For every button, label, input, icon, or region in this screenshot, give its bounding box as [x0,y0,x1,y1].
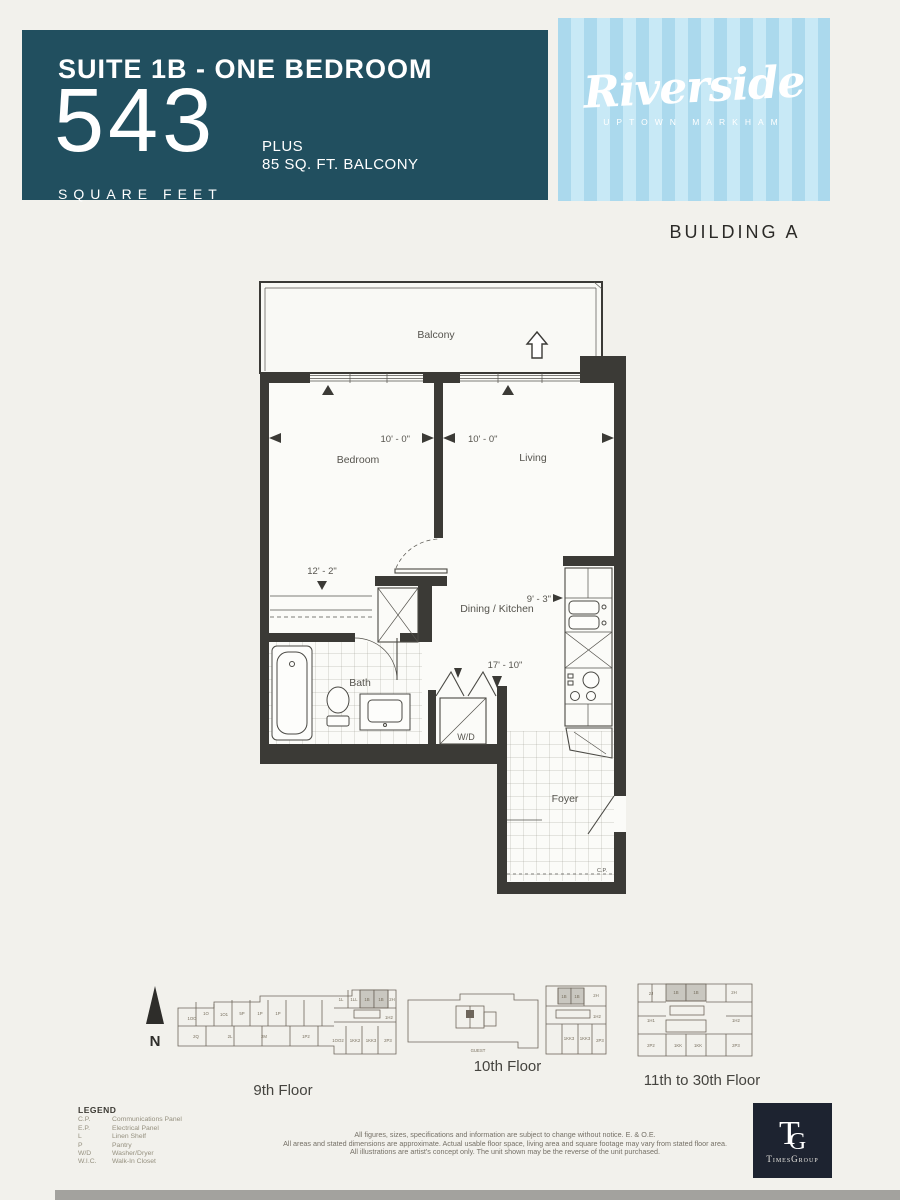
building-label: BUILDING A [610,222,860,243]
keyplan-9th-floor: 1OO 1O 1O1 5P 1P 1P 1L 1LL 1B 1B 2H 2Q 2… [168,978,398,1070]
unit-label: 1H2 [593,1014,601,1019]
balcony-label: Balcony [417,329,455,341]
keyplan-11-30-floor: 2J 1B 1B 2H 1H1 1H2 2P2 1KK 1KK 2P3 [622,972,772,1070]
legend-row: E.P. Electrical Panel [78,1125,182,1133]
brand-panel: Riverside UPTOWN MARKHAM [558,18,830,201]
north-label: N [150,1033,161,1050]
communications-panel-label: C.P. [597,868,607,874]
legend-desc: Walk-In Closet [112,1158,156,1166]
timesgroup-logo: TG TimesGroup [753,1103,832,1178]
tg-monogram-icon: TG [779,1117,806,1151]
unit-label: 2J [649,991,654,996]
brand-logo-script: Riverside [557,55,831,120]
unit-label: 1O1 [220,1012,229,1017]
unit-label: 1O [203,1011,209,1016]
legend-row: C.P. Communications Panel [78,1116,182,1124]
unit-label: 1OO [187,1016,197,1021]
living-width-dim: 10' - 0" [468,434,497,445]
timesgroup-name: TimesGroup [766,1154,818,1164]
unit-label: 1OO2 [332,1038,344,1043]
foyer [507,731,614,881]
kitchen-width-dim: 9' - 3" [527,594,551,605]
unit-label: 2P2 [647,1043,655,1048]
legend-row: P Pantry [78,1142,182,1150]
bathroom [269,638,422,744]
unit-label: 2H [593,993,599,998]
balcony-area-note: 85 SQ. FT. BALCONY [262,156,419,173]
bathtub [272,646,312,740]
unit-label: 1B [574,994,579,999]
legend: LEGEND C.P. Communications Panel E.P. El… [78,1106,182,1167]
legend-desc: Pantry [112,1142,132,1150]
balcony-floor [260,282,602,373]
unit-label: 1KK3 [564,1036,575,1041]
unit-label: 2H [731,990,737,995]
north-arrow-icon: N [142,984,168,1056]
foyer-label: Foyer [552,793,579,805]
unit-label: 5P [239,1011,244,1016]
unit-label: 1LL [350,997,358,1002]
unit-label: 1P [257,1011,262,1016]
legend-abbr: W.I.C. [78,1158,112,1166]
legend-title: LEGEND [78,1106,182,1114]
unit-label: 1P2 [302,1034,310,1039]
unit-label: 1B [364,997,369,1002]
legend-desc: Linen Shelf [112,1133,146,1141]
vanity-sink [360,694,410,730]
unit-label: 1P [275,1011,280,1016]
unit-label: 2P3 [596,1038,604,1043]
disclaimer-line: All illustrations are artist's concept o… [250,1148,760,1157]
legend-row: L Linen Shelf [78,1133,182,1141]
legend-desc: Washer/Dryer [112,1150,154,1158]
bedroom-width-dim: 10' - 0" [381,434,410,445]
scan-edge-band [55,1190,900,1200]
legend-row: W.I.C. Walk-In Closet [78,1158,182,1166]
bedroom-length-dim: 12' - 2" [307,566,336,577]
unit-label: 1B [693,990,698,995]
unit-label: 1B [561,994,566,999]
square-feet-label: SQUARE FEET [58,186,223,202]
legend-abbr: C.P. [78,1116,112,1124]
legend-abbr: W/D [78,1150,112,1158]
guest-label: GUEST [471,1048,486,1053]
legend-desc: Electrical Panel [112,1125,159,1133]
monogram-g: G [789,1130,806,1154]
dining-kitchen-label: Dining / Kitchen [460,603,534,615]
brand-subtitle: UPTOWN MARKHAM [558,117,830,127]
unit-label: 1H2 [732,1018,740,1023]
unit-label: 1B [378,997,383,1002]
bedroom-label: Bedroom [337,454,380,466]
unit-label: 1B [673,990,678,995]
keyplan-10-caption: 10th Floor [400,1058,615,1075]
keyplan-11-30-caption: 11th to 30th Floor [622,1072,782,1089]
unit-label: 1KK [674,1043,682,1048]
legend-abbr: E.P. [78,1125,112,1133]
unit-label: 1KK3 [366,1038,377,1043]
bath-label: Bath [349,677,371,689]
legend-row: W/D Washer/Dryer [78,1150,182,1158]
unit-label: 1L [339,997,344,1002]
unit-label: 2P3 [732,1043,740,1048]
unit-label: 2H [389,997,395,1002]
legend-abbr: P [78,1142,112,1150]
unit-label: 2P3 [384,1038,392,1043]
floor-plan: Balcony Bedroom Living Dining / Kitchen … [250,276,630,908]
unit-label: 1KK [694,1043,702,1048]
unit-label: 2Q [193,1034,199,1039]
disclaimer: All figures, sizes, specifications and i… [250,1131,760,1157]
square-feet-number: 543 [54,76,216,166]
unit-label: 1H1 [647,1018,655,1023]
unit-label: 2L [228,1034,233,1039]
washer-dryer-label: W/D [457,732,475,742]
living-label: Living [519,452,547,464]
unit-label: 2M [261,1034,267,1039]
plus-label: PLUS [262,138,303,155]
unit-label: 1KK3 [580,1036,591,1041]
keyplan-9-caption: 9th Floor [168,1082,398,1099]
unit-length-dim: 17' - 10" [488,660,523,671]
keyplan-10th-floor: 1B 1B 2H 1H2 1KK3 1KK3 2P3 GUEST [400,980,615,1065]
toilet [327,687,349,726]
suite-header-panel: SUITE 1B - ONE BEDROOM 543 PLUS 85 SQ. F… [22,30,548,200]
unit-label: 1H2 [385,1015,393,1020]
unit-label: 1KK2 [350,1038,361,1043]
legend-abbr: L [78,1133,112,1141]
legend-desc: Communications Panel [112,1116,182,1124]
